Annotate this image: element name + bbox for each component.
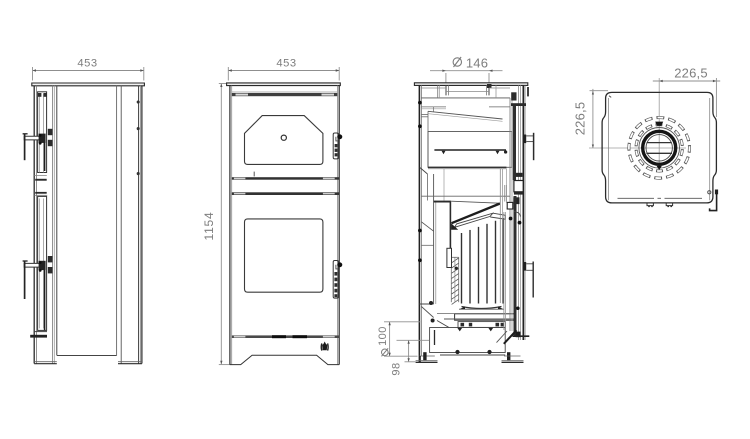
svg-text:453: 453	[77, 58, 97, 70]
svg-text:453: 453	[276, 58, 296, 70]
svg-text:98: 98	[391, 362, 403, 375]
svg-text:226,5: 226,5	[573, 102, 588, 136]
svg-text:226,5: 226,5	[674, 66, 708, 81]
svg-text:100: 100	[377, 326, 389, 346]
svg-text:1154: 1154	[202, 211, 216, 240]
svg-text:146: 146	[466, 55, 488, 70]
